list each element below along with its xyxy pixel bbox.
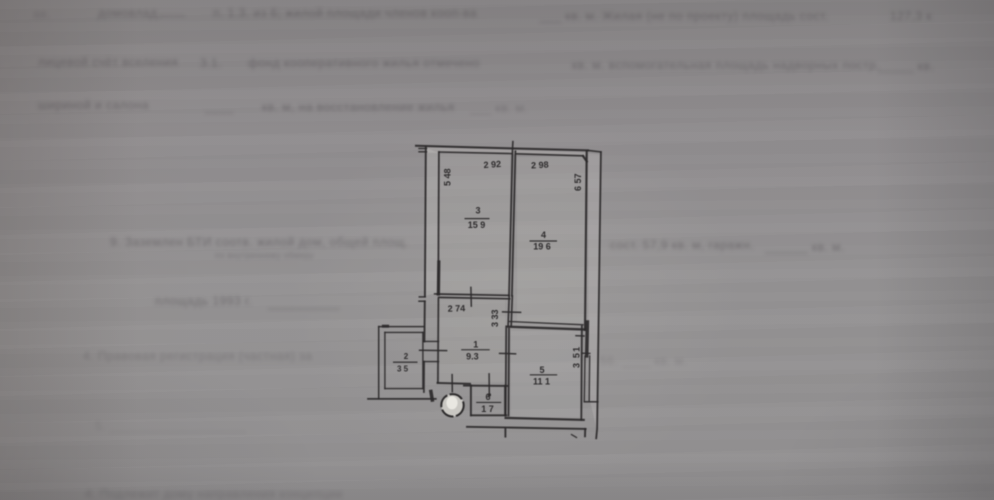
svg-text:3 51: 3 51	[572, 346, 582, 368]
svg-text:2: 2	[404, 352, 409, 361]
svg-text:5 48: 5 48	[443, 168, 453, 186]
svg-text:19 6: 19 6	[533, 242, 551, 252]
svg-text:6 57: 6 57	[573, 173, 583, 191]
svg-text:3 5: 3 5	[397, 365, 409, 374]
svg-text:3: 3	[475, 206, 480, 216]
svg-text:4: 4	[541, 230, 546, 240]
svg-text:15 9: 15 9	[468, 220, 486, 230]
svg-text:11 1: 11 1	[533, 376, 550, 386]
svg-text:2 74: 2 74	[447, 303, 465, 314]
svg-text:1: 1	[473, 339, 478, 349]
svg-text:3 33: 3 33	[490, 309, 500, 327]
svg-text:6: 6	[485, 392, 490, 402]
svg-text:2 92: 2 92	[483, 159, 501, 170]
svg-text:1 7: 1 7	[481, 404, 494, 414]
svg-text:2 98: 2 98	[531, 160, 549, 171]
svg-text:5: 5	[539, 365, 544, 375]
svg-text:9.3: 9.3	[466, 352, 479, 362]
